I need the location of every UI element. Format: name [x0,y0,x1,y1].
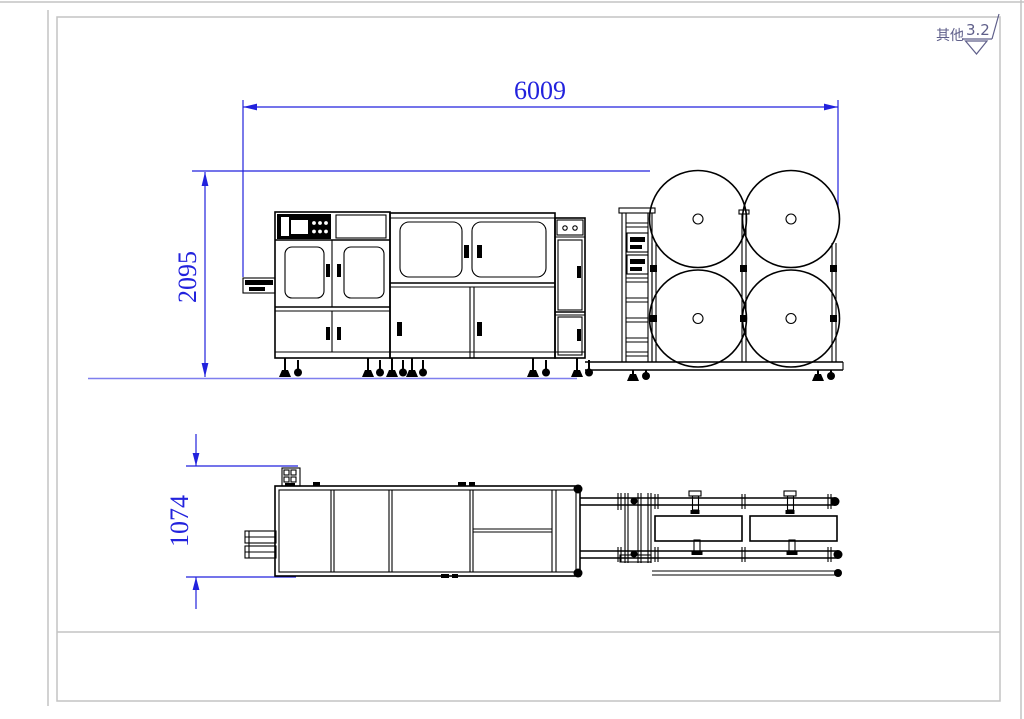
front-left-cabinet [275,212,390,358]
rail-end-cap [831,497,840,506]
top-body [275,482,583,578]
roll-clamp [787,540,798,555]
material-roll [650,171,747,268]
surface-finish-note: 其他 3.2 [936,14,999,54]
roll-clamp [692,540,703,555]
front-middle-cabinet [390,213,555,358]
top-feed-bracket [245,531,276,558]
dimension-overall-height-value: 2095 [173,251,202,303]
roll-hub [786,214,796,224]
arrowhead-down-icon [202,363,209,377]
window [472,222,546,277]
door-handle [577,329,581,341]
roll-hub [786,314,796,324]
button [563,226,567,230]
door-handle [337,264,341,277]
top-roll-rack [655,491,837,555]
front-feed-bracket [243,278,275,293]
surface-finish-scope-label: 其他 [936,28,964,44]
arrowhead-up-icon [193,577,200,590]
hmi-screen [291,220,308,234]
rail-end-cap [834,569,842,577]
cad-drawing: 其他 3.2 6009 2095 1074 [0,0,1024,719]
door-handle [397,322,402,336]
top-tower [620,493,651,563]
window [344,247,384,298]
corner-post [574,485,583,494]
corner-post [574,569,583,578]
arrowhead-right-icon [824,104,838,111]
door-handle [326,327,330,340]
roll-hub [693,214,703,224]
dimension-overall-length-value: 6009 [514,76,566,105]
window [285,247,324,298]
material-roll [743,171,840,268]
front-tower [619,208,655,362]
arrowhead-down-icon [193,453,200,466]
arrowhead-up-icon [202,172,209,186]
drawing-sheet: 其他 3.2 6009 2095 1074 [0,0,1024,719]
dimension-overall-width: 1074 [165,434,298,609]
button [573,226,577,230]
material-roll [650,270,747,367]
door-handle [326,264,330,277]
window [400,222,462,277]
inner-frame [57,17,1000,701]
roll-clamp [784,491,796,514]
rail-end-cap [834,550,843,559]
door-handle [464,245,469,258]
door-handle [337,327,341,340]
top-column-bump [282,468,300,486]
sheet-frame [0,0,1024,719]
material-roll [743,270,840,367]
roll-hub [693,314,703,324]
top-view [245,468,843,578]
roll-clamp [689,491,701,514]
dimension-overall-width-value: 1074 [165,495,194,547]
arrowhead-left-icon [243,104,257,111]
front-roll-rack [650,171,840,368]
surface-finish-value: 3.2 [966,21,990,39]
front-end-column [555,218,585,358]
door-handle [477,322,482,336]
door-handle [477,245,482,258]
material-roll-top [655,516,742,541]
material-roll-top [750,516,837,541]
tower-rungs [626,278,648,356]
front-base-rail [585,362,843,370]
door-handle [577,266,581,278]
top-rails [580,493,843,577]
front-view [243,171,843,382]
